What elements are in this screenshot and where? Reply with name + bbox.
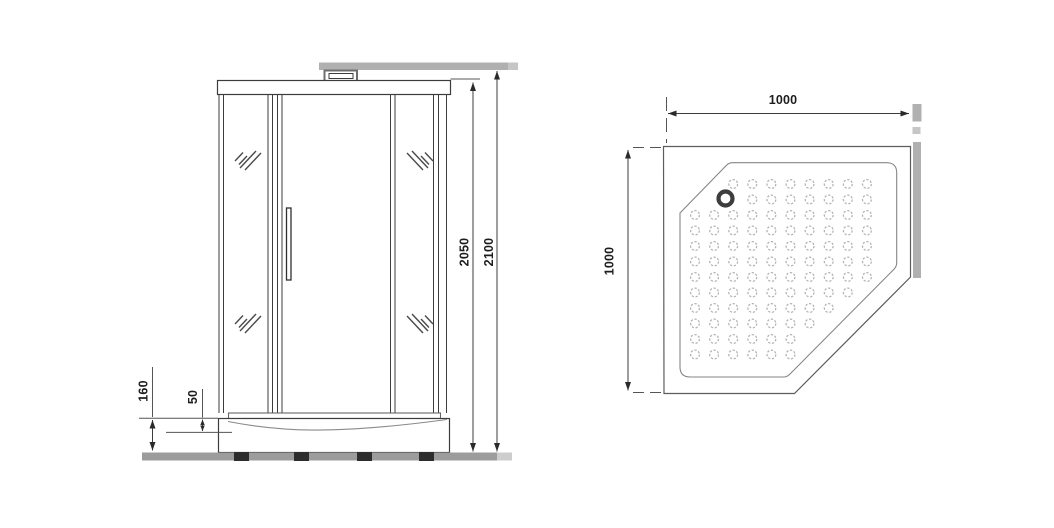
foot bbox=[419, 452, 434, 461]
ceiling-line-end bbox=[508, 63, 518, 71]
glass-shine-mark bbox=[239, 156, 247, 165]
wall-block bbox=[913, 104, 922, 122]
glass-shine-mark bbox=[245, 316, 261, 333]
drawing-svg: 2050 2100 160 50 bbox=[0, 0, 1054, 528]
top-view: 1000 1000 bbox=[602, 93, 921, 394]
glass-shine-mark bbox=[245, 153, 261, 170]
floor-line-end bbox=[497, 453, 512, 461]
roof-vent bbox=[325, 71, 358, 82]
tray-base bbox=[219, 419, 450, 453]
frame-columns bbox=[219, 95, 447, 414]
dim-base-height: 160 bbox=[136, 367, 218, 451]
dim-label-depth-1000: 1000 bbox=[602, 247, 616, 276]
tray-inner-surface bbox=[680, 163, 897, 377]
glass-shine-mark bbox=[425, 153, 433, 162]
shower-cabin-technical-drawing: 2050 2100 160 50 bbox=[0, 0, 1054, 528]
dim-label-2050: 2050 bbox=[457, 238, 471, 267]
dim-label-2100: 2100 bbox=[482, 238, 496, 267]
dim-label-50: 50 bbox=[186, 390, 200, 404]
dim-label-160: 160 bbox=[136, 380, 150, 401]
dim-cabin-height: 2050 bbox=[451, 79, 481, 452]
glass-shine-mark bbox=[421, 156, 429, 165]
roof-panel bbox=[218, 81, 451, 95]
glass-panel-right-marks bbox=[407, 151, 433, 333]
drain-hole bbox=[719, 192, 733, 206]
vent-inner bbox=[329, 74, 353, 79]
ceiling-line bbox=[319, 63, 508, 71]
glass-shine-mark bbox=[235, 153, 243, 162]
foot bbox=[357, 452, 372, 461]
foot bbox=[234, 452, 249, 461]
floor-line bbox=[142, 453, 497, 461]
glass-shine-mark bbox=[407, 153, 423, 170]
glass-shine-mark bbox=[425, 316, 433, 325]
wall-block-dash bbox=[913, 127, 921, 134]
wall-strip bbox=[913, 142, 921, 278]
door-handle bbox=[287, 208, 292, 280]
dim-width: 1000 bbox=[667, 93, 910, 143]
dim-depth: 1000 bbox=[602, 148, 661, 393]
glass-shine-mark bbox=[239, 319, 247, 328]
threshold-sill bbox=[229, 413, 441, 419]
dim-overall-height: 2100 bbox=[482, 71, 497, 452]
front-view: 2050 2100 160 50 bbox=[136, 63, 518, 462]
glass-panel-left-marks bbox=[235, 151, 261, 333]
glass-shine-mark bbox=[407, 316, 423, 333]
dim-label-width-1000: 1000 bbox=[769, 93, 798, 107]
foot bbox=[294, 452, 309, 461]
glass-shine-mark bbox=[235, 316, 243, 325]
glass-shine-mark bbox=[421, 319, 429, 328]
